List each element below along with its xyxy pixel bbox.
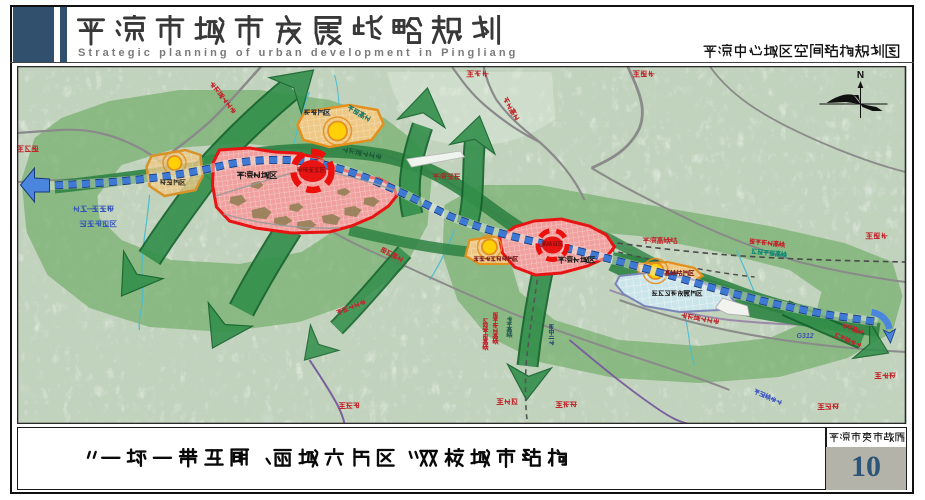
svg-text:G312: G312	[797, 333, 814, 340]
svg-text:N: N	[857, 70, 864, 81]
